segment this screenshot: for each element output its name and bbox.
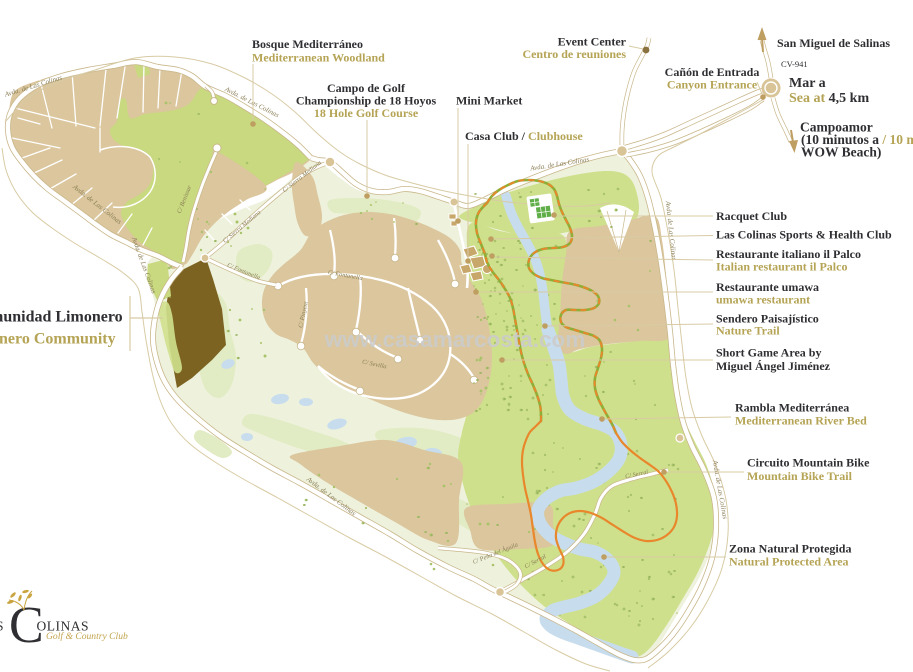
svg-text:Mediterranean River Bed: Mediterranean River Bed [735,414,867,428]
svg-text:San Miguel de Salinas: San Miguel de Salinas [777,36,890,50]
svg-text:18 Hole Golf Course: 18 Hole Golf Course [314,106,419,120]
svg-text:www.casamarcosta.com: www.casamarcosta.com [324,327,586,352]
svg-text:Short Game Area by: Short Game Area by [716,346,821,360]
svg-text:WOW Beach): WOW Beach) [801,144,881,159]
svg-text:onero Community: onero Community [0,331,116,348]
svg-text:Mediterranean Woodland: Mediterranean Woodland [252,50,385,64]
svg-text:CV-941: CV-941 [781,59,808,69]
svg-text:Miguel Ángel Jiménez: Miguel Ángel Jiménez [716,359,831,373]
svg-text:Rambla Mediterránea: Rambla Mediterránea [735,401,849,415]
svg-text:Bosque Mediterráneo: Bosque Mediterráneo [252,37,363,51]
svg-text:Racquet Club: Racquet Club [716,209,787,223]
svg-text:Canyon Entrance: Canyon Entrance [667,77,758,91]
svg-text:munidad Limonero: munidad Limonero [0,309,123,326]
svg-text:Mar a: Mar a [789,76,826,91]
svg-text:Sea at 4,5 km: Sea at 4,5 km [789,91,869,106]
svg-text:Mountain Bike Trail: Mountain Bike Trail [747,469,853,483]
svg-text:LAS: LAS [0,619,4,634]
svg-text:Zona Natural Protegida: Zona Natural Protegida [729,542,851,556]
svg-text:Casa Club / Clubhouse: Casa Club / Clubhouse [465,129,583,143]
svg-text:Centro de reuniones: Centro de reuniones [522,47,626,61]
svg-text:Golf & Country Club: Golf & Country Club [46,631,128,642]
svg-text:Las Colinas Sports & Health Cl: Las Colinas Sports & Health Club [716,228,892,242]
svg-text:Italian restaurant il Palco: Italian restaurant il Palco [716,259,847,273]
svg-text:umawa restaurant: umawa restaurant [716,292,810,306]
svg-text:Avda. de Las Colinas: Avda. de Las Colinas [664,200,678,261]
svg-text:Mini Market: Mini Market [456,94,522,108]
svg-text:Natural Protected Area: Natural Protected Area [729,555,849,569]
svg-text:Circuito Mountain Bike: Circuito Mountain Bike [747,456,870,470]
svg-text:Nature Trail: Nature Trail [716,324,780,338]
